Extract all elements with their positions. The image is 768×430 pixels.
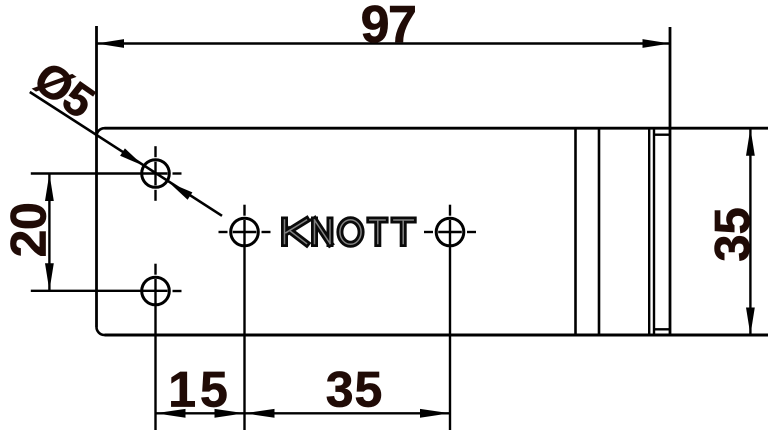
svg-text:20: 20 [1,203,57,258]
svg-text:97: 97 [361,0,416,54]
svg-text:35: 35 [326,362,384,418]
svg-text:35: 35 [706,207,760,262]
svg-text:15: 15 [168,362,232,418]
